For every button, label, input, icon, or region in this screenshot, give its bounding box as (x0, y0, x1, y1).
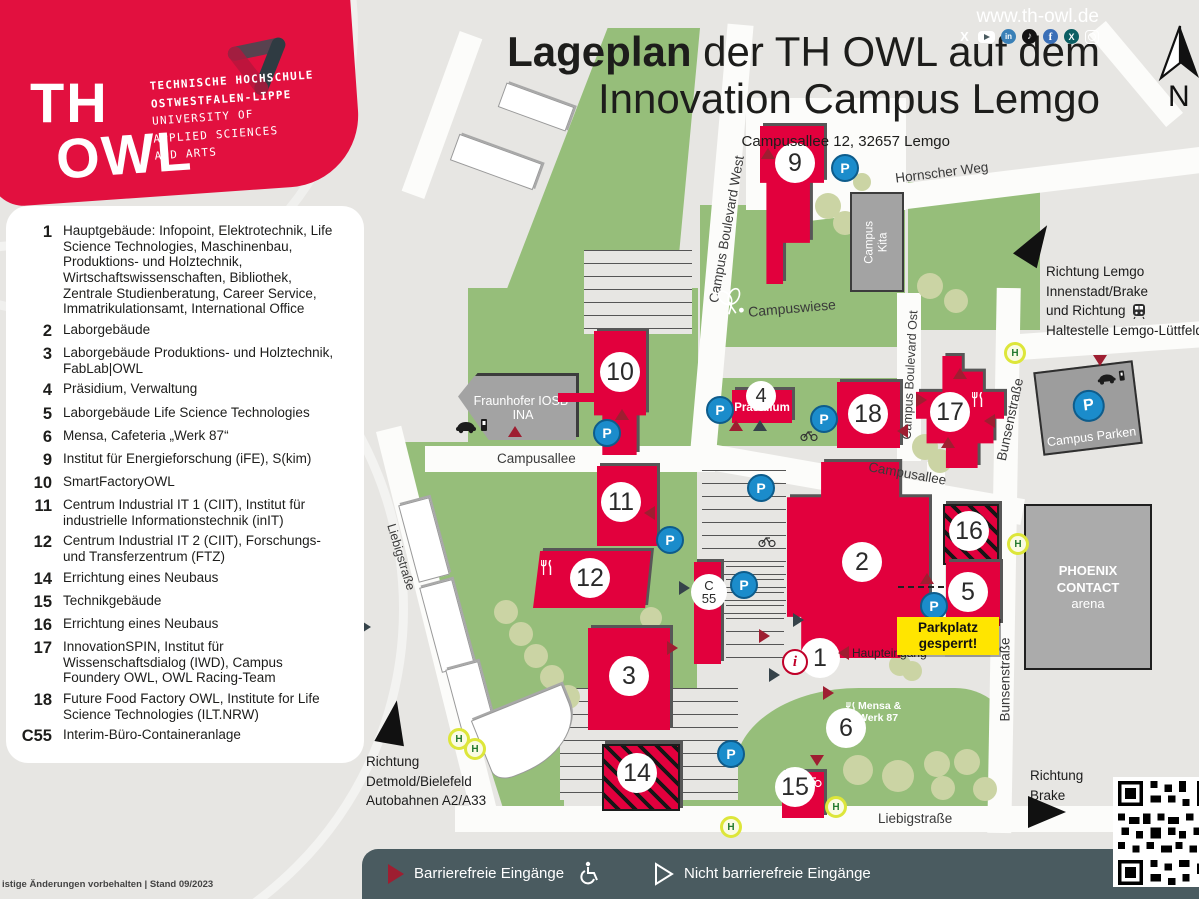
badge-c55: C55 (691, 574, 727, 610)
legend-item-text: Centrum Industrial IT 1 (CIIT), Institut… (63, 497, 343, 528)
social-tiktok-icon[interactable]: ♪ (1022, 29, 1037, 44)
legend-item-number: C55 (6, 727, 63, 745)
qr-code (1113, 777, 1199, 887)
legend-item-number: 2 (6, 322, 63, 340)
legend-item: 3 Laborgebäude Produktions- und Holztech… (6, 345, 358, 376)
legend-item-number: 5 (6, 405, 63, 423)
badge-17: 17 (930, 392, 970, 432)
parking-icon: P (717, 740, 745, 768)
train-icon (1131, 303, 1147, 319)
entrance-marker (644, 506, 655, 520)
white-building (450, 134, 542, 190)
tree (944, 289, 968, 313)
direction-text-detmold: Richtung Detmold/Bielefeld Autobahnen A2… (366, 752, 486, 811)
legend-item: 15 Technikgebäude (6, 593, 358, 611)
legend-item: 17 InnovationSPIN, Institut für Wissensc… (6, 639, 358, 686)
direction-arrow-brake (1028, 796, 1066, 828)
entrance-marker (667, 641, 678, 655)
legend-item-text: SmartFactoryOWL (63, 474, 343, 492)
bus-stop-icon: H (464, 738, 486, 760)
legend-item-number: 16 (6, 616, 63, 634)
direction-text-lemgo: Richtung Lemgo Innenstadt/Brake und Rich… (1046, 262, 1199, 340)
tree (494, 600, 518, 624)
tree (924, 751, 950, 777)
accessible-entrance-icon (386, 862, 406, 886)
legend-item-text: Centrum Industrial IT 2 (CIIT), Forschun… (63, 533, 343, 564)
badge-12: 12 (570, 558, 610, 598)
legend-item: C55 Interim-Büro-Containeranlage (6, 727, 358, 745)
legend-item-text: Mensa, Cafeteria „Werk 87“ (63, 428, 343, 446)
north-arrow-icon (1156, 24, 1199, 84)
parking-icon: P (1071, 388, 1107, 424)
legend-item: 1 Hauptgebäude: Infopoint, Elektrotechni… (6, 223, 358, 317)
parking-icon: P (920, 592, 948, 620)
bus-stop-icon: H (1004, 342, 1026, 364)
logo-org-text: TECHNISCHE HOCHSCHULE OSTWESTFALEN-LIPPE… (149, 66, 319, 165)
tree (902, 661, 922, 681)
entrance-marker (729, 420, 743, 431)
footer-bar: Barrierefreie Eingänge Nicht barrierefre… (362, 849, 1199, 899)
social-x-icon[interactable]: X (957, 29, 972, 44)
entrance-marker (759, 629, 770, 643)
legend-item-text: Hauptgebäude: Infopoint, Elektrotechnik,… (63, 223, 343, 317)
legend-item-text: Laborgebäude Life Science Technologies (63, 405, 343, 423)
bus-stop-icon: H (1007, 533, 1029, 555)
restaurant-icon (846, 702, 856, 715)
tree (882, 760, 914, 792)
car-charging-icon (455, 418, 489, 434)
legend-item-number: 11 (6, 497, 63, 528)
mensa-label: Mensa & Werk 87 (858, 700, 910, 724)
legend-item-number: 15 (6, 593, 63, 611)
badge-11: 11 (601, 482, 641, 522)
barrier-free-label: Barrierefreie Eingänge (414, 865, 564, 882)
badge-16: 16 (949, 511, 989, 551)
tree (931, 776, 955, 800)
entrance-marker (941, 437, 955, 448)
legend-item-text: Institut für Energieforschung (iFE), S(k… (63, 451, 343, 469)
tree (917, 273, 943, 299)
direction-arrow-detmold (374, 698, 411, 747)
street-label-campusallee: Campusallee (497, 451, 576, 466)
parking-icon: P (810, 405, 838, 433)
legend-item-text: Errichtung eines Neubaus (63, 616, 343, 634)
legend-item: 5 Laborgebäude Life Science Technologies (6, 405, 358, 423)
building-campus-kita: Campus Kita (850, 192, 904, 292)
parking-lot (584, 250, 692, 334)
entrance-marker (920, 573, 934, 584)
restaurant-icon (541, 560, 553, 575)
parking-icon: P (730, 571, 758, 599)
campus-kita-label: Campus Kita (863, 217, 892, 267)
legend-item-number: 14 (6, 570, 63, 588)
badge-14: 14 (617, 753, 657, 793)
entrance-marker-nonaccessible (769, 668, 780, 682)
tree (954, 749, 980, 775)
legend-item-number: 9 (6, 451, 63, 469)
entrance-marker (810, 755, 824, 766)
social-youtube-icon[interactable] (978, 31, 995, 43)
parkplatz-gesperrt-label: Parkplatz gesperrt! (897, 617, 999, 655)
legend-item-number: 17 (6, 639, 63, 686)
legend-item-number: 4 (6, 381, 63, 399)
building-campus-parken: P Campus Parken (1033, 360, 1142, 456)
north-label: N (1168, 80, 1190, 114)
legend-item-number: 1 (6, 223, 63, 317)
legend-item-text: Future Food Factory OWL, Institute for L… (63, 691, 343, 722)
badge-10: 10 (600, 352, 640, 392)
badge-18: 18 (848, 394, 888, 434)
badge-2: 2 (842, 542, 882, 582)
entrance-marker (1093, 355, 1107, 366)
tree (973, 777, 997, 801)
wheelchair-icon (580, 861, 598, 885)
not-barrier-free-label: Nicht barrierefreie Eingänge (684, 865, 871, 882)
entrance-marker-nonaccessible (793, 613, 804, 627)
badge-5: 5 (948, 572, 988, 612)
legend-item-text: Technikgebäude (63, 593, 343, 611)
legend-item: 9 Institut für Energieforschung (iFE), S… (6, 451, 358, 469)
restaurant-icon (972, 392, 984, 407)
legend-item-number: 10 (6, 474, 63, 492)
legend-item-number: 18 (6, 691, 63, 722)
entrance-marker (823, 686, 834, 700)
phoenix-arena-label: arena (1071, 596, 1104, 611)
legend-footnote: istige Änderungen vorbehalten | Stand 09… (2, 879, 213, 890)
entrance-marker-nonaccessible (753, 420, 767, 431)
tree (843, 755, 873, 785)
legend-item-number: 6 (6, 428, 63, 446)
campus-address: Campusallee 12, 32657 Lemgo (640, 133, 950, 150)
entrance-marker (953, 368, 967, 379)
parking-icon: P (593, 419, 621, 447)
bus-stop-icon: H (720, 816, 742, 838)
bicycle-icon (758, 536, 776, 547)
car-charging-icon (1096, 368, 1127, 386)
legend-item-text: Errichtung eines Neubaus (63, 570, 343, 588)
street-label-liebigstrasse: Liebigstraße (878, 811, 952, 826)
bicycle-icon (800, 430, 818, 441)
badge-3: 3 (609, 656, 649, 696)
street-label-bunsenstrasse: Bunsenstraße (998, 627, 1013, 733)
legend-item-text: InnovationSPIN, Institut für Wissenschaf… (63, 639, 343, 686)
campus-map-page: Campus Kita Fraunhofer IOSB-INA P Campus… (0, 0, 1199, 899)
campus-parken-label: Campus Parken (1043, 424, 1140, 450)
legend-item-text: Laborgebäude Produktions- und Holztechni… (63, 345, 343, 376)
bicycle-icon (804, 776, 822, 787)
entrance-marker (897, 424, 908, 438)
entrance-marker-nonaccessible (679, 581, 690, 595)
legend-item-number: 12 (6, 533, 63, 564)
legend-item: 16 Errichtung eines Neubaus (6, 616, 358, 634)
legend-item: 14 Errichtung eines Neubaus (6, 570, 358, 588)
info-icon: i (782, 649, 808, 675)
website-link[interactable]: www.th-owl.de (977, 6, 1100, 28)
legend-item: 6 Mensa, Cafeteria „Werk 87“ (6, 428, 358, 446)
legend-item: 10 SmartFactoryOWL (6, 474, 358, 492)
legend-item-text: Laborgebäude (63, 322, 343, 340)
legend-item-text: Präsidium, Verwaltung (63, 381, 343, 399)
legend-item: 4 Präsidium, Verwaltung (6, 381, 358, 399)
entrance-marker (508, 426, 522, 437)
legend-list: 1 Hauptgebäude: Infopoint, Elektrotechni… (6, 223, 358, 746)
bus-stop-icon: H (825, 796, 847, 818)
legend-item-number: 3 (6, 345, 63, 376)
tree (509, 622, 533, 646)
entrance-marker (916, 393, 927, 407)
dashed-line (898, 586, 944, 588)
parking-icon: P (747, 474, 775, 502)
tree (640, 607, 662, 629)
building-phoenix-contact-arena: PHOENIX CONTACT arena (1024, 504, 1152, 670)
entrance-marker (984, 414, 995, 428)
tennis-icon (714, 286, 747, 320)
entrance-marker (615, 409, 629, 420)
entrance-marker-haupteingang (838, 646, 849, 660)
title-line-2: Innovation Campus Lemgo (455, 75, 1100, 122)
social-icons: X in ♪ f X (957, 29, 1099, 44)
tree (524, 644, 548, 668)
badge-4: 4 (746, 381, 776, 411)
phoenix-label: PHOENIX CONTACT (1043, 563, 1133, 597)
legend-item: 12 Centrum Industrial IT 2 (CIIT), Forsc… (6, 533, 358, 564)
legend-item: 18 Future Food Factory OWL, Institute fo… (6, 691, 358, 722)
social-xing-icon[interactable]: X (1064, 29, 1079, 44)
legend-panel: 1 Hauptgebäude: Infopoint, Elektrotechni… (6, 206, 364, 763)
legend-item-text: Interim-Büro-Containeranlage (63, 727, 343, 745)
social-facebook-icon[interactable]: f (1043, 29, 1058, 44)
parking-icon: P (831, 154, 859, 182)
social-instagram-icon[interactable] (1085, 30, 1099, 44)
legend-item: 11 Centrum Industrial IT 1 (CIIT), Insti… (6, 497, 358, 528)
parking-icon: P (656, 526, 684, 554)
legend-item: 2 Laborgebäude (6, 322, 358, 340)
badge-15: 15 (775, 767, 815, 807)
nonaccessible-entrance-icon (654, 862, 674, 886)
social-linkedin-icon[interactable]: in (1001, 29, 1016, 44)
